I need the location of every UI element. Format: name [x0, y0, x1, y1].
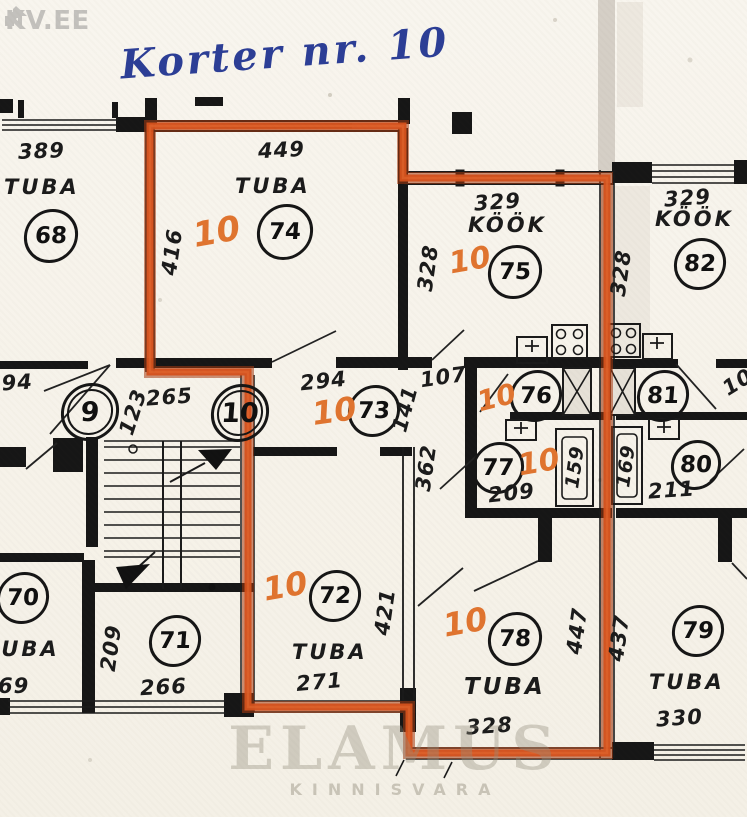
dim-kook75-width: 329 — [473, 188, 521, 215]
room-label-72: TUBA — [292, 640, 368, 664]
room-label-78: TUBA — [464, 674, 546, 700]
room-label-70: TUBA — [0, 637, 60, 661]
floorplan-scan: KV.EE Korter nr. 10 TUBA TUBA KÖÖK KÖÖK … — [0, 0, 747, 817]
dim-tuba79-width: 330 — [655, 704, 703, 731]
unit-marker-75: 10 — [446, 240, 493, 282]
dim-wc77-width: 209 — [487, 479, 536, 508]
unit-marker-73: 10 — [310, 389, 359, 433]
unit-marker-78: 10 — [440, 599, 490, 644]
dim-wc80-width: 211 — [647, 476, 695, 503]
vent-shaft-icon — [610, 368, 635, 415]
sink-icon — [649, 419, 679, 439]
unit-marker-77: 10 — [515, 442, 562, 484]
unit-marker-74: 10 — [190, 208, 244, 256]
kv-logo: KV.EE — [5, 6, 90, 36]
room-label-79: TUBA — [649, 670, 725, 694]
stove-icon — [552, 325, 587, 358]
dim-kook82-width: 329 — [663, 184, 711, 211]
room-label-68: TUBA — [4, 175, 80, 199]
kv-house-icon — [5, 6, 27, 26]
door-swings — [26, 330, 747, 606]
staircase — [104, 441, 240, 591]
dim-tuba70-number: 69 — [0, 674, 29, 698]
dim-tuba72-width: 271 — [295, 668, 344, 696]
dim-hall9-length: 265 — [145, 383, 193, 410]
dim-tuba68-width: 389 — [18, 138, 66, 164]
room-label-74: TUBA — [235, 174, 311, 198]
dim-tuba74-width: 449 — [257, 137, 305, 163]
watermark-kinnisvara: KINNISVARA — [235, 780, 555, 799]
watermark-elamus: ELAMUS — [222, 714, 567, 784]
room-label-75: KÖÖK — [468, 213, 547, 237]
sink-icon — [506, 420, 536, 440]
dim-hall9-width: 294 — [0, 369, 34, 396]
unit-marker-72: 10 — [260, 563, 310, 608]
dim-room71-width: 266 — [139, 674, 187, 700]
vent-shaft-icon — [563, 368, 591, 415]
dim-corridor73-width: 294 — [299, 367, 348, 396]
